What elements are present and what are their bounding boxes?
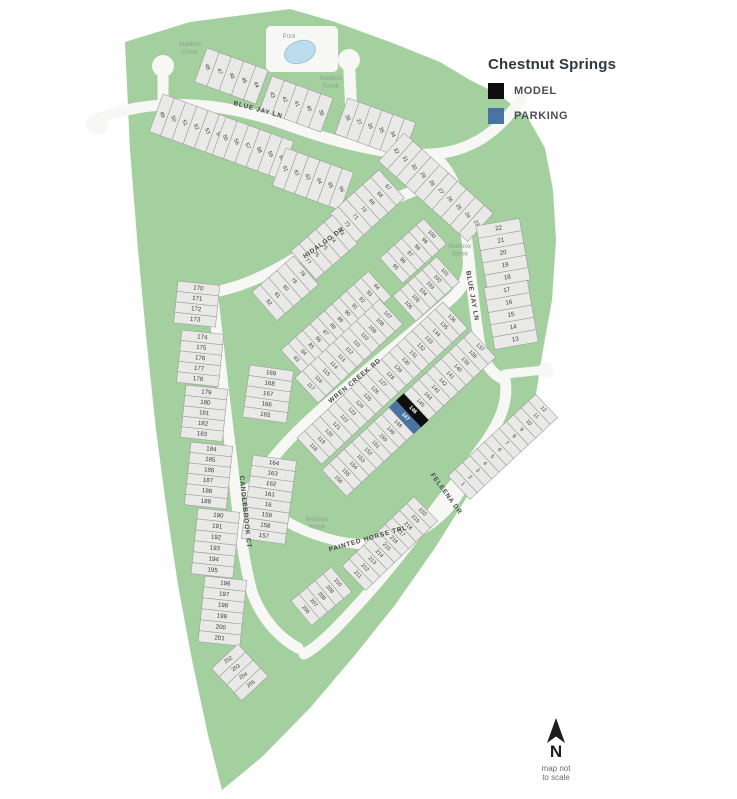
lot-number-180: 180	[200, 399, 212, 407]
lot-number-187: 187	[203, 477, 215, 485]
lot-number-168: 168	[264, 379, 276, 387]
lot-number-159: 159	[261, 511, 273, 519]
lot-number-164: 164	[268, 459, 280, 467]
map-scale-note: map not to scale	[524, 764, 588, 782]
lot-number-195: 195	[207, 566, 219, 574]
lot-number-178: 178	[192, 375, 204, 383]
lots-170-173: 170171172173	[174, 281, 220, 327]
lot-number-191: 191	[212, 523, 224, 531]
legend-title: Chestnut Springs	[488, 56, 616, 73]
lot-number-170: 170	[193, 284, 205, 292]
lot-number-181: 181	[199, 409, 211, 417]
lot-number-201: 201	[214, 634, 226, 642]
lot-number-165: 165	[260, 411, 272, 419]
poi-label-pool: Pool	[282, 33, 296, 40]
lot-number-190: 190	[213, 512, 225, 520]
lot-number-175: 175	[196, 344, 208, 352]
lot-number-169: 169	[265, 369, 277, 377]
lot-number-192: 192	[211, 534, 223, 542]
legend-item-parking: PARKING	[488, 108, 616, 124]
lots-174-178: 174175176177178	[177, 330, 224, 387]
lot-number-182: 182	[198, 420, 210, 428]
compass: N map not to scale	[524, 718, 588, 782]
lot-number-174: 174	[197, 333, 209, 341]
lots-179-183: 179180181182183	[181, 385, 228, 442]
lot-number-163: 163	[267, 469, 279, 477]
lots-196-201: 196197198199200201	[198, 576, 247, 646]
parking-swatch-icon	[488, 108, 504, 124]
lot-number-157: 157	[258, 532, 270, 540]
site-map-page: 4847464544434241403949505152535455565758…	[0, 0, 737, 799]
lot-number-193: 193	[209, 544, 221, 552]
north-arrow-icon	[524, 718, 588, 744]
legend-label-parking: PARKING	[514, 110, 568, 122]
lot-number-198: 198	[218, 602, 230, 610]
lot-number-186: 186	[204, 466, 216, 474]
lot-number-179: 179	[201, 388, 213, 396]
lot-number-171: 171	[192, 295, 204, 303]
lot-number-161: 161	[264, 490, 276, 498]
lot-number-194: 194	[208, 555, 220, 563]
lot-number-185: 185	[205, 456, 217, 464]
lots-184-189: 184185186187188189	[184, 442, 232, 509]
lot-number-200: 200	[215, 623, 227, 631]
legend-item-model: MODEL	[488, 83, 616, 99]
lot-number-162: 162	[266, 480, 278, 488]
lot-number-166: 166	[261, 400, 273, 408]
lot-number-158: 158	[260, 521, 272, 529]
lots-190-195: 190191192193194195	[191, 508, 240, 578]
road-kiosk-driveway	[349, 62, 351, 104]
compass-letter: N	[524, 744, 588, 760]
lot-number-196: 196	[220, 580, 232, 588]
lot-number-199: 199	[216, 612, 228, 620]
lots-169-165: 169168167166165	[243, 365, 294, 423]
site-map: 4847464544434241403949505152535455565758…	[0, 0, 737, 799]
legend: Chestnut Springs MODEL PARKING	[488, 56, 616, 133]
lot-number-197: 197	[219, 591, 231, 599]
lot-number-184: 184	[206, 445, 218, 453]
lot-number-176: 176	[195, 354, 207, 362]
lot-number-177: 177	[194, 365, 206, 373]
lot-number-188: 188	[201, 487, 213, 495]
lot-number-173: 173	[190, 316, 202, 324]
legend-label-model: MODEL	[514, 85, 557, 97]
lot-number-189: 189	[200, 498, 212, 506]
model-swatch-icon	[488, 83, 504, 99]
road-east-stub	[505, 370, 544, 374]
lot-number-183: 183	[196, 430, 208, 438]
lot-number-172: 172	[191, 305, 203, 313]
lot-number-167: 167	[263, 390, 275, 398]
